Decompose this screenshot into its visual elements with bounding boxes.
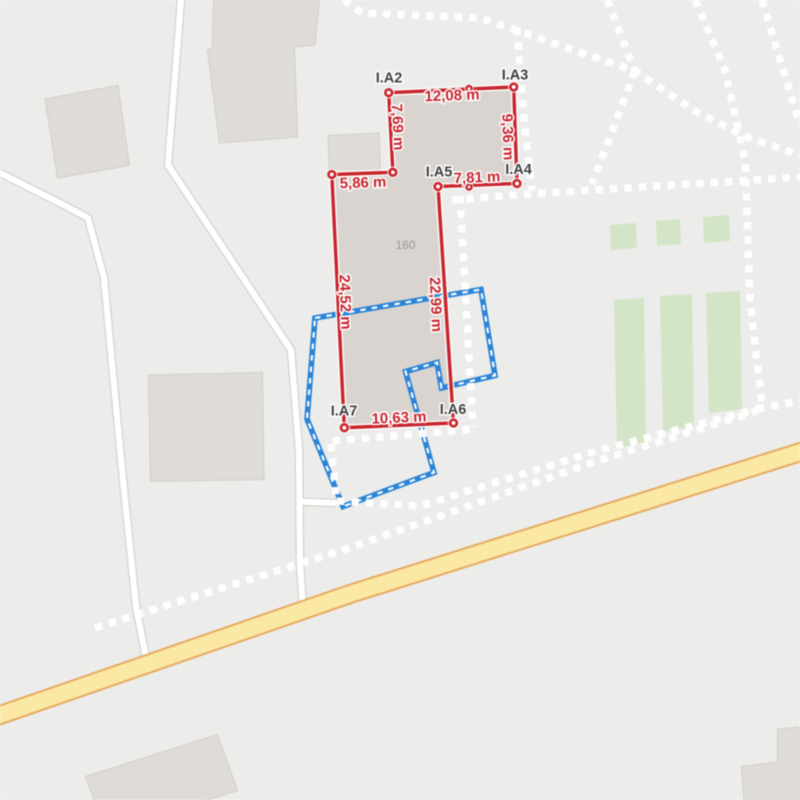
svg-text:I.A7: I.A7: [331, 404, 358, 420]
svg-text:24,52 m: 24,52 m: [336, 274, 355, 330]
svg-text:9,36 m: 9,36 m: [498, 113, 517, 160]
svg-text:I.A2: I.A2: [376, 70, 403, 86]
svg-text:I.A5: I.A5: [426, 165, 453, 181]
svg-text:7,81 m: 7,81 m: [453, 168, 500, 187]
svg-text:I.A4: I.A4: [505, 162, 532, 178]
svg-text:I.A3: I.A3: [502, 68, 529, 84]
svg-text:160: 160: [395, 238, 415, 252]
svg-text:22,99 m: 22,99 m: [426, 277, 445, 333]
svg-text:I.A6: I.A6: [440, 402, 467, 418]
svg-text:7,69 m: 7,69 m: [388, 103, 407, 151]
svg-text:5,86 m: 5,86 m: [339, 174, 386, 193]
svg-text:10,63 m: 10,63 m: [371, 408, 427, 427]
svg-text:12,08 m: 12,08 m: [424, 86, 480, 105]
